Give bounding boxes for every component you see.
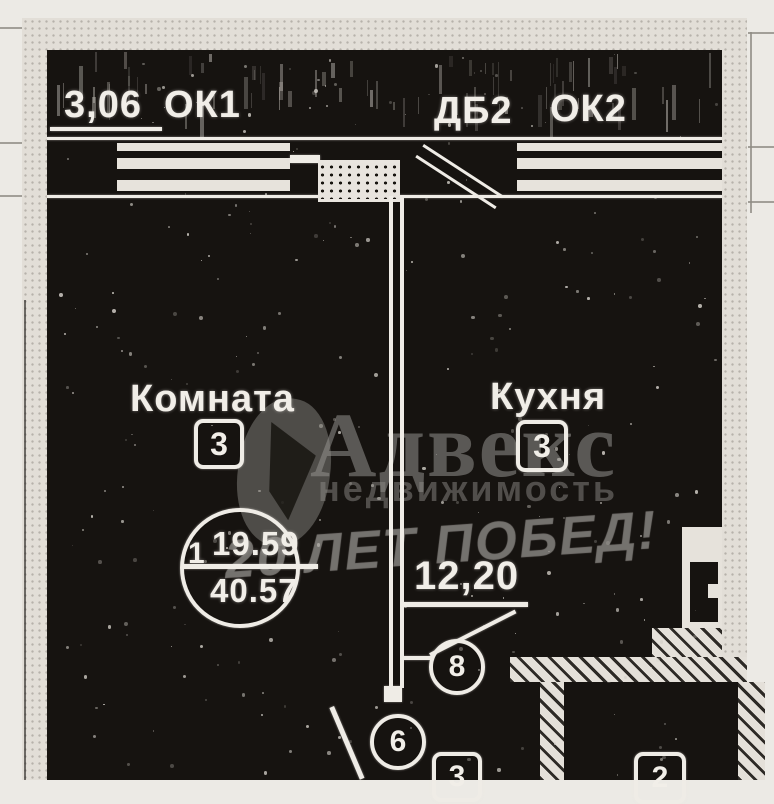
living-room-label: Комната [130,378,295,421]
balcony-door-leaf [415,144,503,209]
floor-plan-scan: Адвекс недвижимость 20 ЛЕТ ПОБЕД! 3,06 О… [0,0,774,780]
partition-wall-end [384,686,402,702]
window-ok2 [517,143,722,191]
kitchen-dimension-line [402,602,528,607]
callout-kitchen-door: 8 [429,639,485,695]
kitchen-dimension-label: 12,20 [414,554,519,599]
window1-label: ОК1 [164,84,241,127]
bath-number-box: 2 [634,752,686,804]
hall-number-box: 3 [432,752,482,802]
balcony-threshold [318,160,400,202]
callout-hall-door: 6 [370,714,426,770]
stamp-total-area: 40.57 [210,572,298,610]
stamp-living-area: 19.59 [212,525,300,563]
balcony-door-label: ДБ2 [434,90,513,133]
window-ok1 [117,143,290,191]
window-wall-top-line [47,137,722,140]
partition-wall [389,196,404,688]
door-swing-line [329,706,364,780]
kitchen-number-box: 3 [516,420,568,472]
stamp-rooms-count: 1 [188,537,206,571]
kitchen-label: Кухня [490,376,606,419]
window2-label: ОК2 [550,88,627,131]
balcony-dimension-underline [50,127,162,131]
living-room-number-box: 3 [194,419,244,469]
balcony-dimension-label: 3,06 [64,84,142,127]
sill-connector [290,155,320,163]
